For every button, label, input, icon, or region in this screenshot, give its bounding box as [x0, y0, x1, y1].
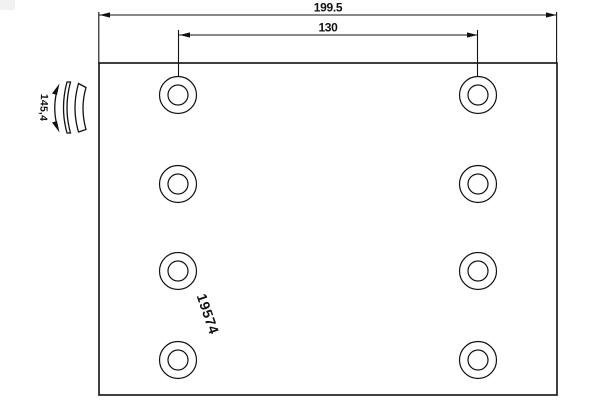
curvature-symbol: 145,4	[37, 82, 86, 133]
curvature-dimension-label: 145,4	[37, 94, 50, 122]
scan-artifact	[0, 0, 15, 10]
technical-drawing-page: 199.5 130 145,4 19574	[0, 0, 600, 400]
technical-drawing-canvas: 199.5 130 145,4 19574	[0, 0, 600, 400]
dimension-holes-label: 130	[318, 21, 338, 35]
dimension-overall-label: 199.5	[314, 1, 343, 15]
arc-arrow-bottom-icon	[52, 121, 60, 133]
arrow-left-icon	[100, 12, 111, 17]
arc-arrow-top-icon	[52, 84, 60, 96]
arrow-left-icon	[180, 32, 191, 37]
arrow-right-icon	[467, 32, 478, 37]
arrow-right-icon	[546, 12, 557, 17]
lining-arc-band-outer	[75, 84, 86, 133]
lining-arc-band-inner	[64, 82, 71, 133]
